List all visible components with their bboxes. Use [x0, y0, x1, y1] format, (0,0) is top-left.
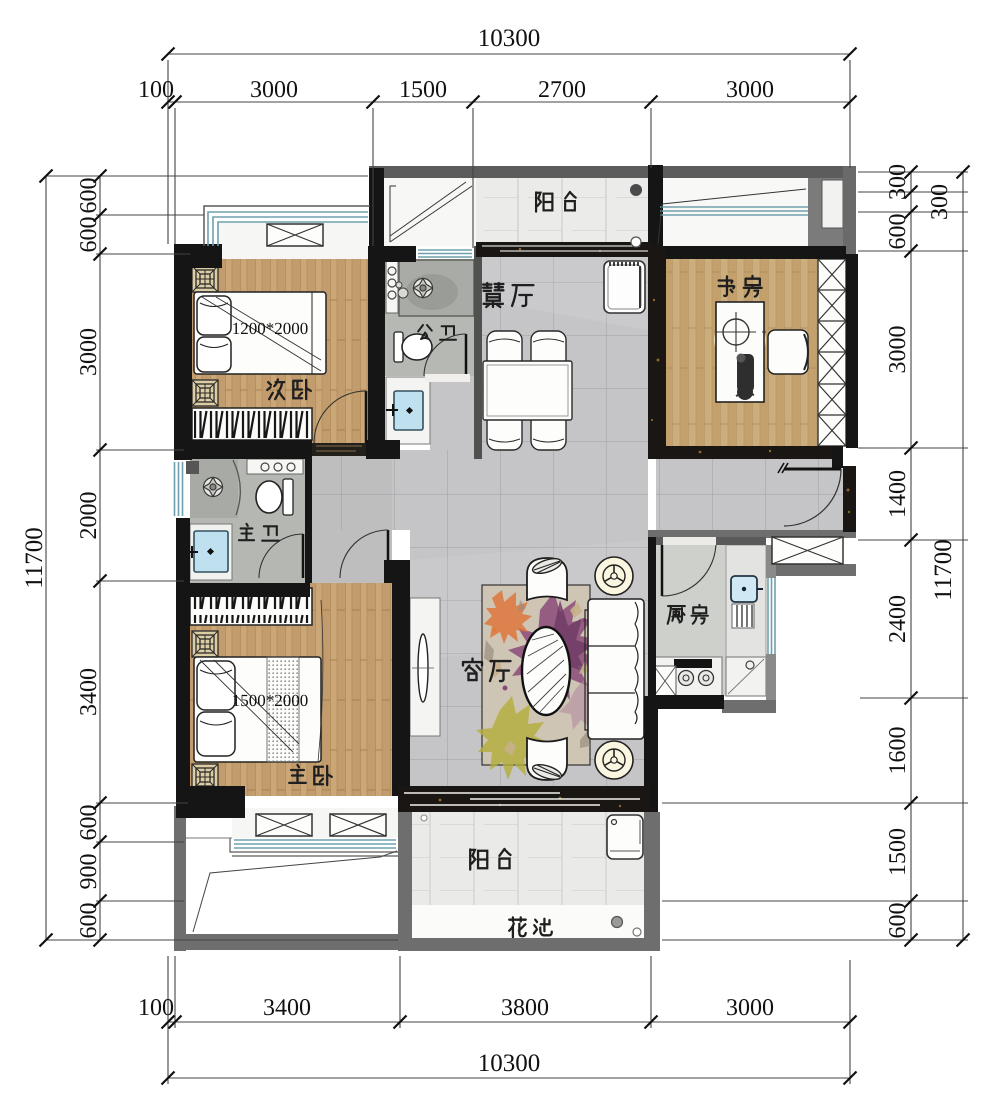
svg-text:10300: 10300: [478, 25, 541, 52]
svg-text:3000: 3000: [885, 326, 911, 374]
svg-text:3800: 3800: [501, 995, 549, 1021]
svg-text:1500: 1500: [885, 828, 911, 876]
svg-text:10300: 10300: [478, 1050, 541, 1077]
svg-text:3400: 3400: [263, 995, 311, 1021]
svg-text:300: 300: [885, 164, 911, 200]
svg-text:600: 600: [885, 903, 911, 939]
svg-text:600: 600: [76, 178, 102, 214]
svg-text:2400: 2400: [885, 595, 911, 643]
svg-text:3000: 3000: [76, 328, 102, 376]
svg-text:11700: 11700: [930, 539, 957, 601]
svg-text:600: 600: [76, 217, 102, 253]
svg-text:3000: 3000: [726, 995, 774, 1021]
svg-text:100: 100: [138, 77, 174, 103]
svg-text:300: 300: [927, 184, 953, 220]
svg-text:1500*2000: 1500*2000: [232, 691, 309, 710]
svg-text:1600: 1600: [885, 727, 911, 775]
svg-text:11700: 11700: [21, 527, 48, 589]
svg-text:3400: 3400: [76, 668, 102, 716]
svg-text:1200*2000: 1200*2000: [232, 319, 309, 338]
svg-text:2000: 2000: [76, 492, 102, 540]
svg-text:1500: 1500: [399, 77, 447, 103]
svg-text:3000: 3000: [726, 77, 774, 103]
svg-text:900: 900: [76, 854, 102, 890]
svg-text:600: 600: [76, 903, 102, 939]
svg-text:600: 600: [76, 805, 102, 841]
svg-text:1400: 1400: [885, 470, 911, 518]
svg-text:2700: 2700: [538, 77, 586, 103]
svg-text:600: 600: [885, 214, 911, 250]
svg-text:100: 100: [138, 995, 174, 1021]
svg-text:3000: 3000: [250, 77, 298, 103]
